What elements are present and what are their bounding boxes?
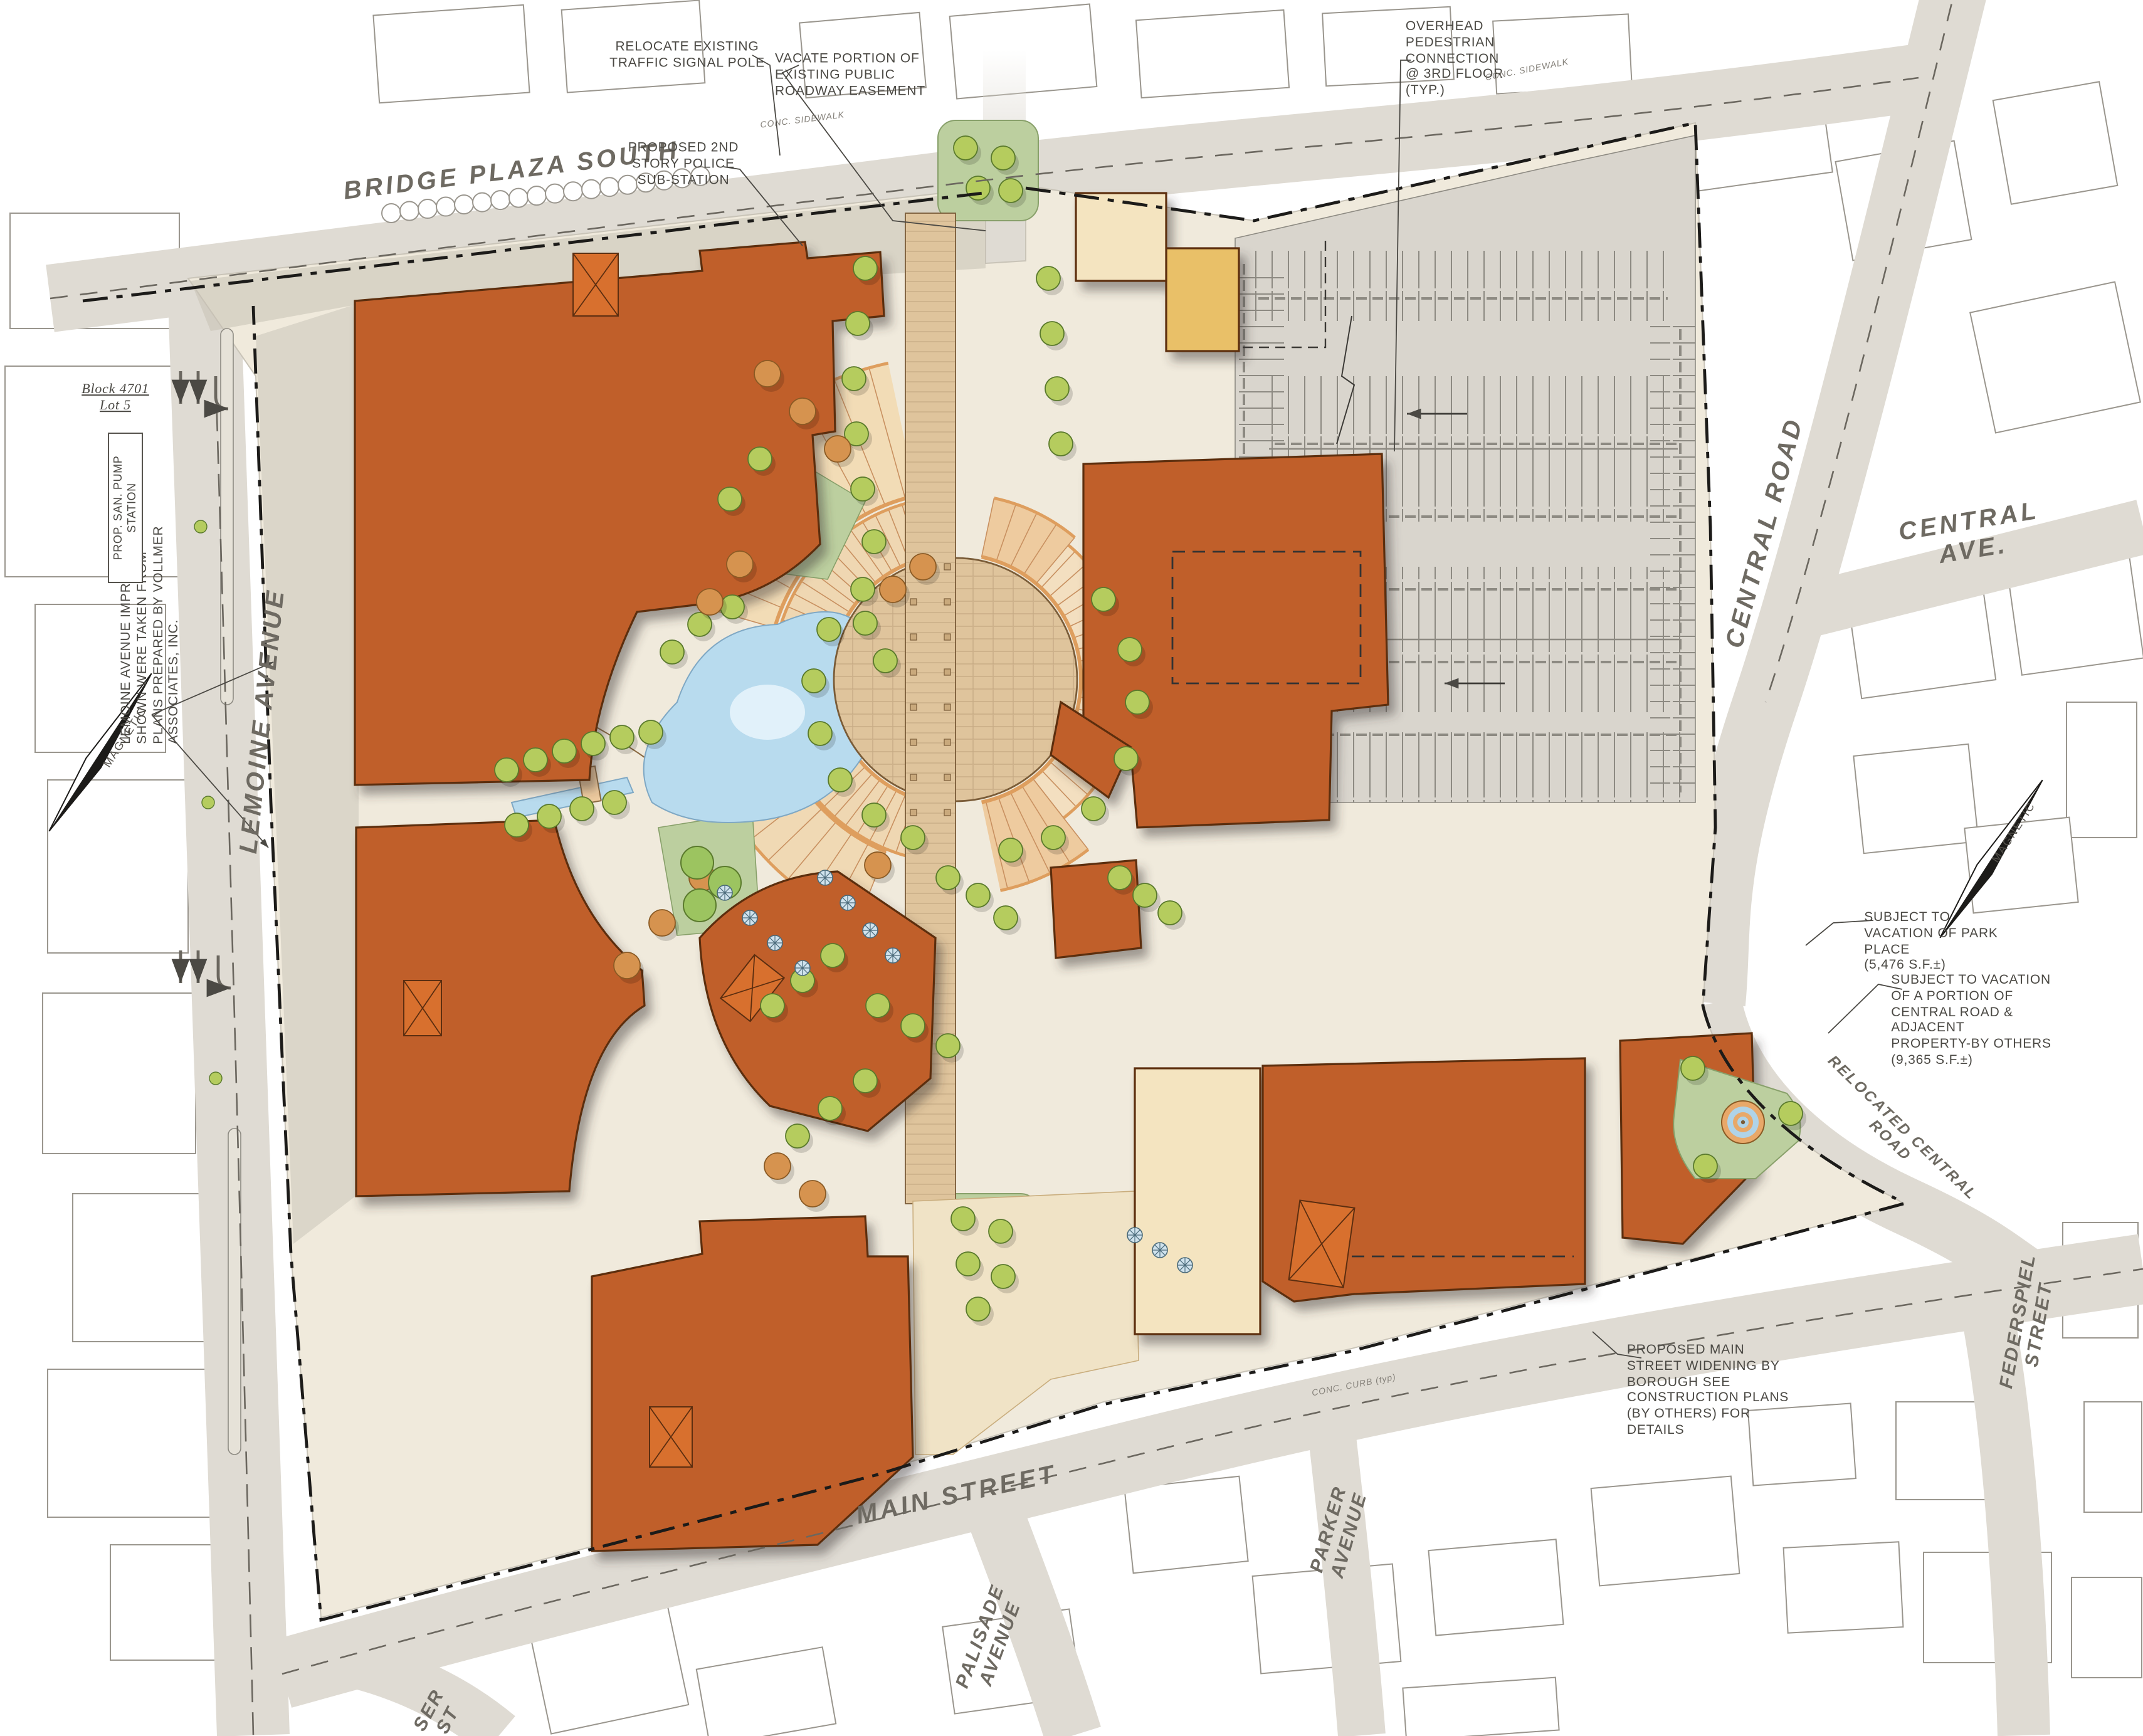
context-building (373, 5, 529, 103)
tree-orange (649, 910, 675, 936)
tree (818, 1097, 842, 1120)
hedge-shrub (491, 191, 510, 209)
hedge-shrub (400, 202, 419, 221)
context-building (43, 993, 196, 1154)
context-building (73, 1194, 213, 1342)
tree (1045, 377, 1069, 401)
bollard (944, 599, 950, 605)
site-plan-stage: BRIDGE PLAZA SOUTH LEMOINE AVENUE CENTRA… (0, 0, 2143, 1736)
note-park-place-vacation: SUBJECT TO VACATION OF PARK PLACE (5,476… (1864, 910, 1998, 974)
tree-orange (614, 952, 640, 979)
hedge-shrub (473, 193, 492, 212)
hedge-shrub (455, 195, 473, 214)
tree (537, 804, 561, 828)
tree-orange (727, 551, 753, 577)
tree (936, 1034, 960, 1058)
lemoine-median-1 (221, 329, 233, 705)
context-building (1993, 82, 2118, 204)
tree (853, 256, 877, 280)
tree (1040, 322, 1064, 345)
tree (748, 447, 772, 471)
tree (862, 803, 886, 827)
tree (1036, 266, 1060, 290)
bollard (944, 669, 950, 675)
building-cream-substation (1076, 193, 1166, 281)
tree-orange (799, 1181, 826, 1207)
bollard (910, 739, 917, 745)
umbrella (863, 923, 878, 938)
umbrella (1127, 1228, 1142, 1243)
tree (999, 179, 1023, 203)
tree (991, 1265, 1015, 1288)
tree-orange (880, 576, 906, 602)
tree (761, 994, 784, 1018)
context-building (1136, 10, 1289, 98)
tree-small (194, 520, 207, 533)
umbrella (885, 948, 900, 963)
tree-orange (697, 589, 723, 615)
tree (802, 669, 826, 693)
context-building (1591, 1476, 1740, 1586)
tree (570, 797, 594, 821)
bollard (944, 634, 950, 640)
tree (954, 136, 977, 160)
tree (1092, 587, 1115, 611)
tree (603, 791, 626, 814)
building-cream-tower (1135, 1068, 1260, 1334)
note-overhead-pedestrian: OVERHEAD PEDESTRIAN CONNECTION @ 3RD FLO… (1406, 19, 1503, 99)
context-building (1428, 1539, 1563, 1635)
tree-small (209, 1072, 222, 1085)
tree (1681, 1056, 1705, 1080)
tree-large (683, 889, 716, 922)
tree (936, 866, 960, 890)
tree (808, 722, 832, 745)
hedge-shrub (545, 184, 564, 203)
bollard (910, 774, 917, 781)
tree (989, 1219, 1013, 1243)
umbrella (742, 910, 757, 925)
road-parker-avenue (1332, 1432, 1362, 1735)
tree (828, 768, 852, 792)
tree (901, 1014, 925, 1038)
bollard (910, 704, 917, 710)
tree (505, 813, 529, 837)
pond-highlight (730, 685, 805, 740)
note-main-street-widening: PROPOSED MAIN STREET WIDENING BY BOROUGH… (1627, 1342, 1789, 1439)
stair-core (573, 253, 618, 316)
tree (951, 1207, 975, 1231)
hedge-shrub (600, 177, 619, 196)
context-building (2084, 1402, 2142, 1512)
stair-core (650, 1407, 692, 1467)
umbrella (767, 935, 782, 950)
tree (660, 640, 684, 664)
tree (821, 944, 845, 967)
tree-orange (824, 436, 851, 462)
bollard (944, 739, 950, 745)
tree (1779, 1102, 1803, 1125)
fountain-jet (1741, 1120, 1745, 1124)
tree (966, 883, 990, 907)
umbrella (717, 885, 732, 900)
tree (901, 826, 925, 850)
tree-orange (754, 360, 781, 387)
bollard (910, 669, 917, 675)
tree (524, 748, 547, 772)
tree (495, 758, 519, 782)
tree (1133, 883, 1157, 907)
stair-core (404, 981, 441, 1036)
hedge-shrub (564, 182, 582, 201)
plan-drawing (0, 0, 2143, 1736)
hedge-shrub (527, 186, 546, 205)
tree (851, 577, 875, 601)
verge-top (938, 120, 1038, 221)
tree-orange (764, 1153, 791, 1179)
tree-orange (789, 398, 816, 424)
note-vacate-easement: VACATE PORTION OF EXISTING PUBLIC ROADWA… (775, 51, 925, 100)
tree (966, 1297, 990, 1321)
tree (853, 611, 877, 635)
tree (1125, 690, 1149, 714)
tree (718, 487, 742, 511)
context-building (1853, 744, 1978, 853)
bollard (910, 809, 917, 816)
tree (552, 739, 576, 763)
umbrella (818, 870, 833, 885)
stall-row (1254, 251, 1668, 321)
tree (991, 146, 1015, 170)
tree (853, 1069, 877, 1093)
umbrella (1152, 1243, 1167, 1258)
bollard (944, 774, 950, 781)
umbrella (840, 895, 855, 910)
tree (581, 732, 605, 755)
note-central-road-vacation: SUBJECT TO VACATION OF A PORTION OF CENT… (1891, 972, 2051, 1069)
note-pump-station: PROP. SAN. PUMP STATION (108, 433, 143, 583)
tree (1693, 1154, 1717, 1178)
tree (999, 838, 1023, 862)
context-building (1403, 1678, 1559, 1736)
tree (956, 1252, 980, 1276)
tree (1158, 901, 1182, 925)
tree (817, 618, 841, 641)
hedge-shrub (382, 204, 401, 223)
context-building (1970, 282, 2140, 433)
tree (786, 1124, 809, 1148)
tree (851, 477, 875, 501)
hedge-shrub (509, 189, 528, 208)
stair-core (1289, 1200, 1355, 1287)
tree (1108, 866, 1132, 890)
tree (1041, 826, 1065, 850)
tree (994, 906, 1018, 930)
context-building (2072, 1577, 2142, 1678)
context-building (697, 1647, 836, 1736)
tree (873, 649, 897, 673)
tree (1114, 747, 1138, 771)
tree-large (681, 846, 713, 879)
context-building (48, 1369, 213, 1517)
context-building (1784, 1542, 1903, 1633)
note-police-substation: PROPOSED 2ND STORY POLICE SUB-STATION (628, 140, 739, 189)
building-yellow-parking-edge (1166, 248, 1239, 351)
bollard (944, 704, 950, 710)
tree (866, 994, 890, 1018)
note-relocate-signal: RELOCATE EXISTING TRAFFIC SIGNAL POLE (609, 39, 765, 71)
tree (1118, 638, 1142, 661)
tree (842, 367, 866, 391)
tree (846, 312, 870, 335)
stall-row (1269, 376, 1678, 449)
context-building (1124, 1476, 1248, 1573)
bollard (910, 634, 917, 640)
tree-small (202, 796, 214, 809)
bollard (944, 564, 950, 570)
note-block-lot: Block 4701 Lot 5 (82, 382, 149, 416)
bollard (910, 599, 917, 605)
context-building (1493, 14, 1632, 93)
stall-column (1650, 326, 1695, 792)
site-plan: BRIDGE PLAZA SOUTH LEMOINE AVENUE CENTRA… (0, 0, 2143, 1736)
tree-orange (865, 852, 891, 878)
umbrella (1177, 1258, 1193, 1273)
tree (610, 725, 634, 749)
tree (862, 530, 886, 554)
hedge-shrub (418, 199, 437, 218)
tree (1049, 432, 1073, 456)
context-building (2067, 702, 2137, 838)
umbrella (795, 960, 810, 976)
hedge-shrub (582, 180, 601, 199)
tree-orange (910, 554, 936, 580)
hedge-shrub (436, 197, 455, 216)
tree (639, 720, 663, 744)
tree (1082, 797, 1105, 821)
bollard (944, 809, 950, 816)
